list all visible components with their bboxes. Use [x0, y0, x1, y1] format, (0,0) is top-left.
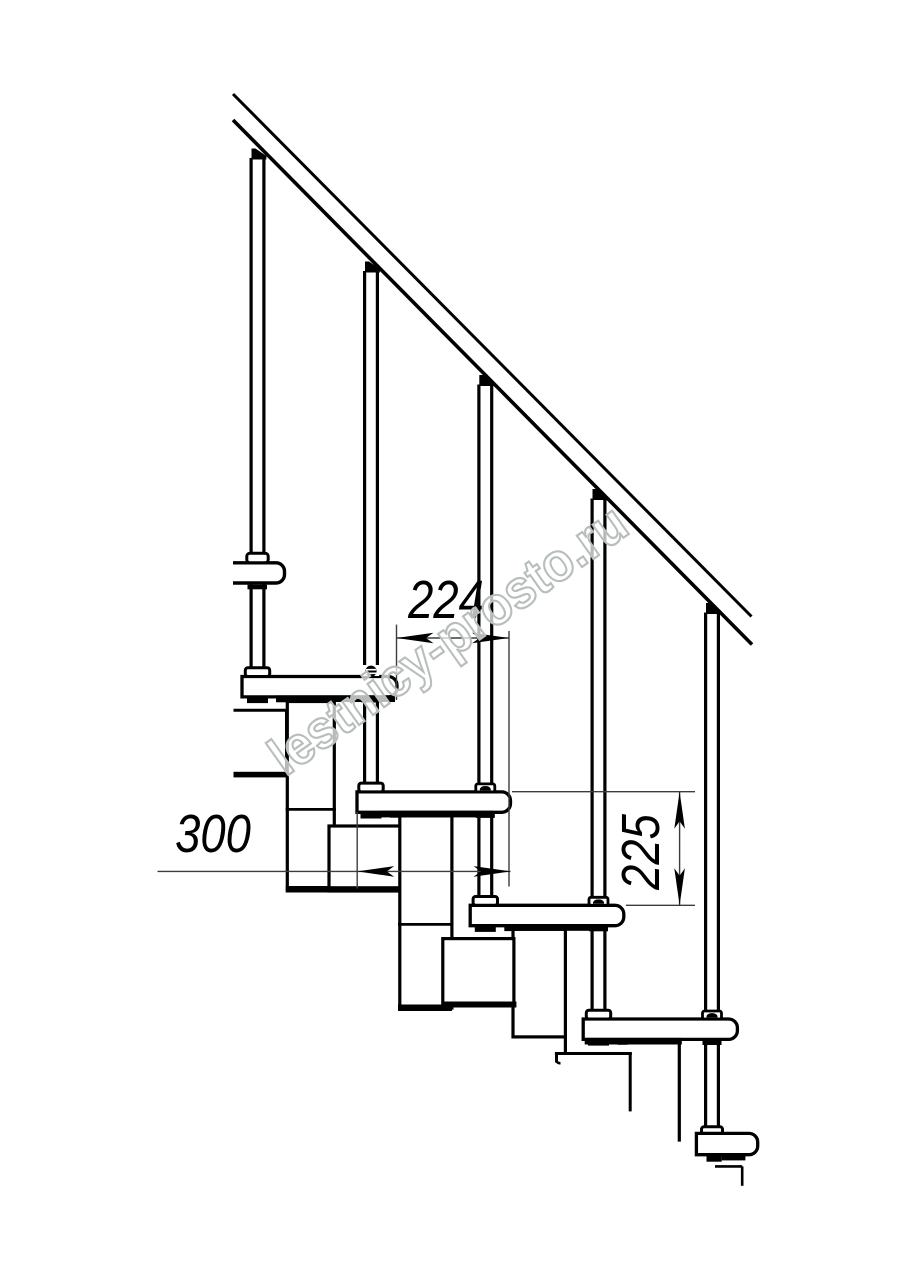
svg-text:300: 300 — [175, 803, 251, 864]
svg-text:225: 225 — [610, 814, 671, 891]
